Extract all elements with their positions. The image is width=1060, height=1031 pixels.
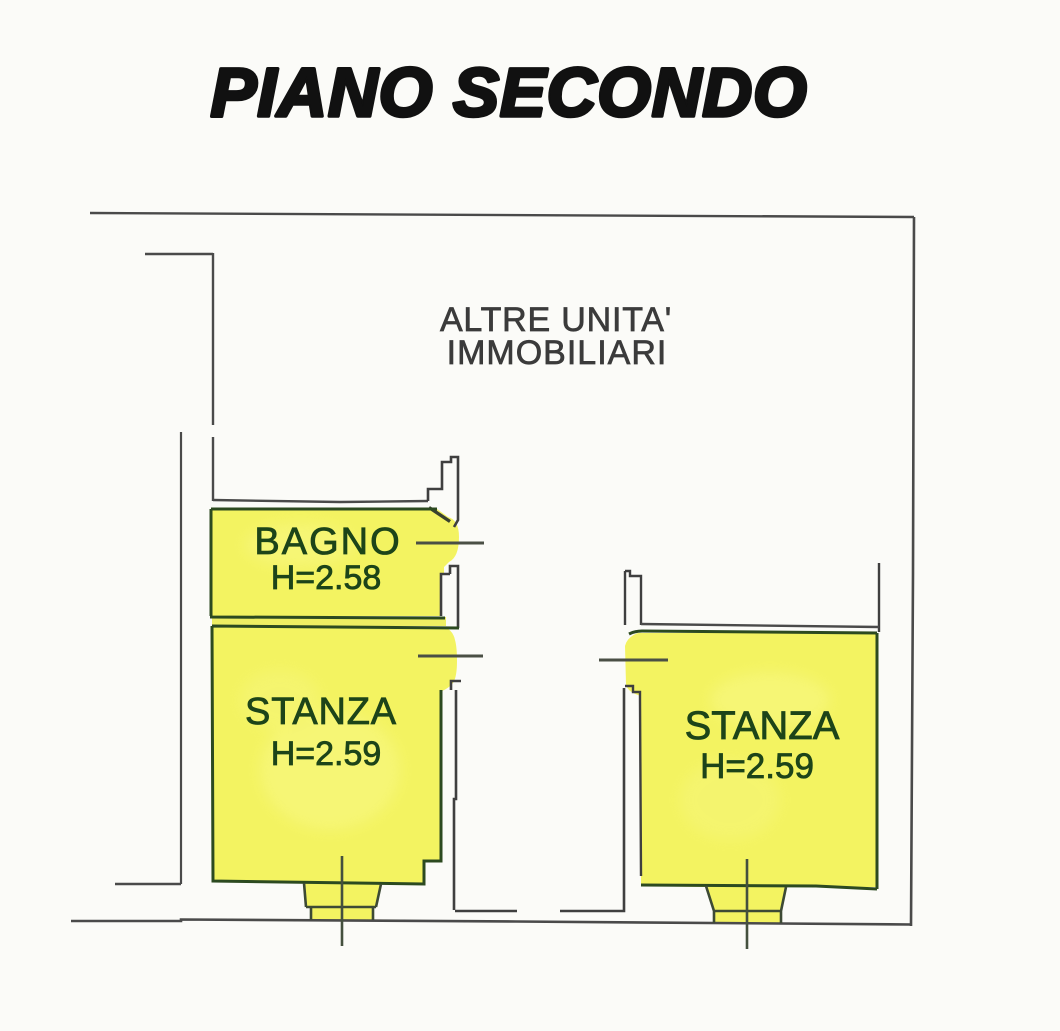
- svg-text:IMMOBILIARI: IMMOBILIARI: [447, 334, 668, 372]
- svg-text:H=2.59: H=2.59: [271, 735, 382, 773]
- svg-text:STANZA: STANZA: [245, 691, 397, 733]
- svg-text:STANZA: STANZA: [685, 704, 840, 748]
- svg-text:PIANO SECONDO: PIANO SECONDO: [211, 54, 808, 131]
- svg-text:H=2.58: H=2.58: [271, 559, 382, 597]
- svg-text:H=2.59: H=2.59: [700, 747, 814, 786]
- svg-text:BAGNO: BAGNO: [254, 521, 401, 563]
